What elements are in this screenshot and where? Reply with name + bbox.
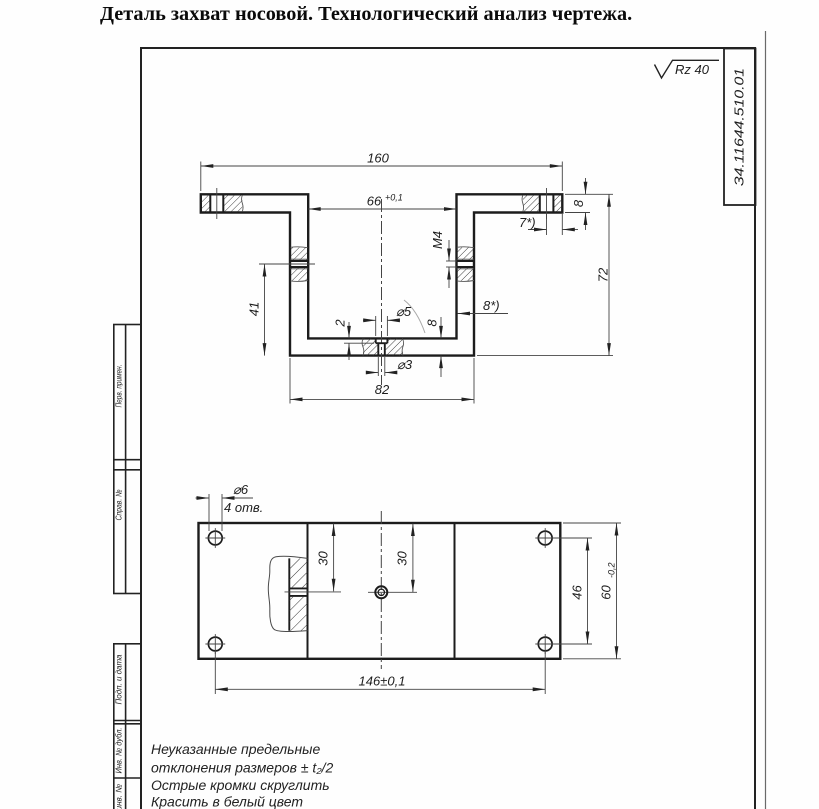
svg-text:30: 30 — [395, 551, 410, 566]
svg-text:46: 46 — [570, 585, 585, 600]
svg-text:8: 8 — [425, 319, 440, 327]
svg-text:⌀5: ⌀5 — [396, 304, 412, 319]
svg-text:З4.11644.510.01: З4.11644.510.01 — [732, 68, 747, 186]
svg-text:146±0,1: 146±0,1 — [359, 674, 406, 689]
svg-text:160: 160 — [367, 151, 389, 166]
svg-text:отклонения размеров ± t₂/2: отклонения размеров ± t₂/2 — [151, 760, 334, 776]
svg-text:4 отв.: 4 отв. — [224, 500, 263, 515]
svg-text:2: 2 — [333, 319, 348, 328]
svg-text:Неуказанные предельные: Неуказанные предельные — [151, 741, 320, 757]
svg-text:Острые кромки скруглить: Острые кромки скруглить — [151, 777, 330, 793]
svg-text:66: 66 — [367, 194, 382, 209]
svg-text:82: 82 — [375, 382, 390, 397]
svg-text:+0,1: +0,1 — [385, 193, 403, 203]
svg-text:30: 30 — [316, 551, 331, 566]
svg-text:-0,2: -0,2 — [607, 562, 617, 578]
svg-text:Красить в белый цвет: Красить в белый цвет — [151, 794, 303, 809]
svg-text:Справ. №: Справ. № — [114, 489, 124, 520]
svg-text:8*): 8*) — [483, 298, 500, 313]
svg-text:⌀3: ⌀3 — [397, 357, 413, 372]
svg-text:Подп. и дата: Подп. и дата — [114, 654, 124, 704]
svg-text:Инв. № дубл.: Инв. № дубл. — [114, 728, 124, 774]
svg-text:60: 60 — [599, 585, 614, 600]
svg-text:Rz 40: Rz 40 — [675, 62, 710, 77]
svg-text:7*): 7*) — [519, 215, 536, 230]
svg-text:Перв. примен.: Перв. примен. — [114, 365, 124, 408]
svg-text:8: 8 — [571, 199, 586, 207]
svg-text:72: 72 — [596, 267, 611, 282]
svg-text:41: 41 — [247, 302, 262, 316]
svg-text:M4: M4 — [430, 231, 445, 249]
svg-text:Взам. инв. №: Взам. инв. № — [114, 784, 124, 809]
svg-text:⌀6: ⌀6 — [233, 482, 249, 497]
